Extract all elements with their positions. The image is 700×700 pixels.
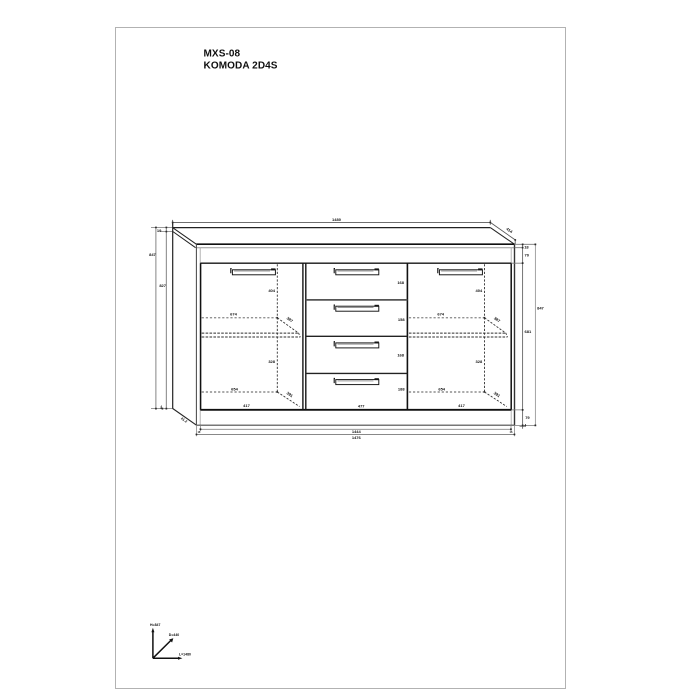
svg-text:391: 391 bbox=[286, 390, 295, 398]
svg-text:847: 847 bbox=[537, 306, 544, 311]
svg-text:41.2: 41.2 bbox=[180, 416, 188, 423]
svg-text:L=1480: L=1480 bbox=[179, 653, 191, 657]
svg-text:KOMODA 2D4S: KOMODA 2D4S bbox=[204, 60, 278, 71]
svg-text:391: 391 bbox=[493, 390, 502, 398]
svg-text:79: 79 bbox=[525, 415, 530, 420]
svg-text:D=440: D=440 bbox=[169, 633, 179, 637]
svg-text:19: 19 bbox=[157, 228, 162, 233]
svg-text:16: 16 bbox=[510, 430, 513, 434]
svg-text:414: 414 bbox=[505, 226, 514, 234]
svg-text:18: 18 bbox=[524, 244, 529, 249]
svg-text:4: 4 bbox=[525, 424, 527, 428]
svg-text:387: 387 bbox=[286, 316, 295, 324]
svg-text:404: 404 bbox=[268, 288, 275, 293]
svg-text:417: 417 bbox=[458, 403, 465, 408]
svg-text:1444: 1444 bbox=[352, 429, 362, 434]
svg-text:674: 674 bbox=[230, 311, 237, 316]
svg-text:MXS-08: MXS-08 bbox=[204, 49, 241, 60]
svg-text:404: 404 bbox=[476, 288, 483, 293]
svg-text:827: 827 bbox=[159, 283, 166, 288]
svg-text:1476: 1476 bbox=[352, 435, 362, 440]
svg-text:654: 654 bbox=[231, 386, 238, 391]
svg-text:328: 328 bbox=[476, 359, 483, 364]
svg-text:168: 168 bbox=[397, 353, 404, 358]
svg-text:417: 417 bbox=[243, 403, 250, 408]
svg-text:674: 674 bbox=[437, 311, 444, 316]
svg-text:847: 847 bbox=[149, 252, 156, 257]
svg-text:70: 70 bbox=[525, 253, 530, 258]
svg-text:477: 477 bbox=[358, 403, 365, 408]
svg-text:168: 168 bbox=[397, 280, 404, 285]
svg-text:654: 654 bbox=[438, 386, 445, 391]
svg-text:188: 188 bbox=[398, 387, 405, 392]
svg-text:158: 158 bbox=[398, 317, 405, 322]
svg-text:H=847: H=847 bbox=[150, 623, 160, 627]
svg-text:1480: 1480 bbox=[332, 217, 342, 222]
svg-text:328: 328 bbox=[268, 359, 275, 364]
svg-text:387: 387 bbox=[493, 316, 502, 324]
svg-text:681: 681 bbox=[525, 329, 532, 334]
